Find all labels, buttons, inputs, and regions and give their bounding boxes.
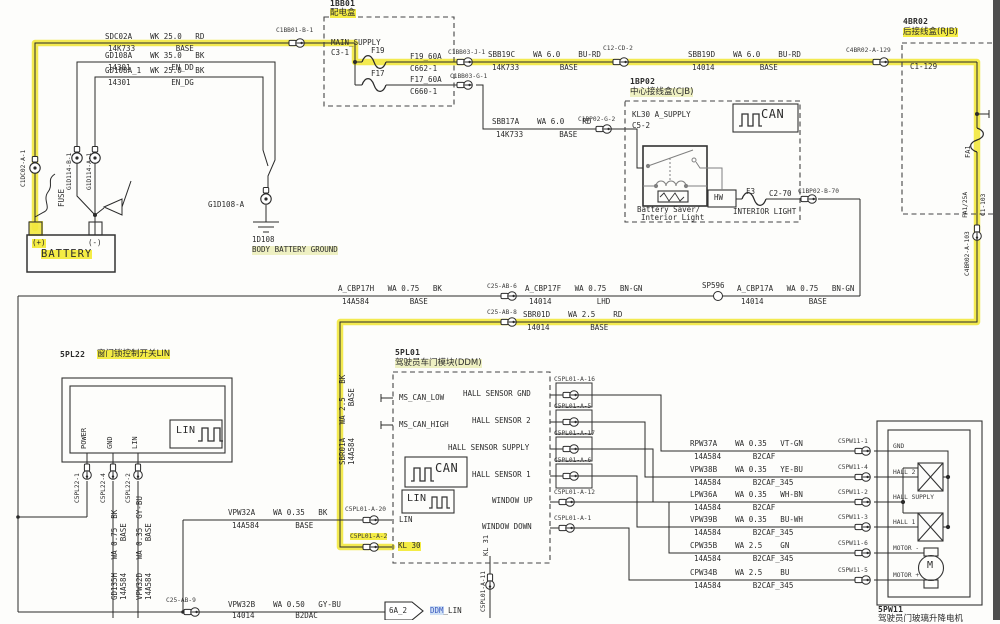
- conn-c5pl01-a-6-icon: [563, 472, 578, 481]
- lin-waveform-icon-ddm: [429, 497, 450, 508]
- wire-sbb19d-l2: 14014 BASE: [692, 64, 778, 73]
- spl22-switch: [62, 378, 232, 462]
- pw11-pin-hall2: HALL 2: [893, 469, 915, 476]
- connector-label-c5pl01-a-20: C5PL01-A-20: [345, 506, 386, 513]
- pw11-pin-hall-supply: HALL SUPPLY: [893, 494, 934, 501]
- wire-vpw38b-l1: VPW38B WA 0.35 YE-BU: [690, 466, 803, 475]
- fuse-fa1-label: FA1: [965, 145, 972, 158]
- hw-label: HW: [714, 194, 723, 203]
- fuse-f17-spec: F17_60A: [410, 76, 442, 85]
- ddm-pin-hall-1: HALL SENSOR 1: [472, 471, 531, 480]
- cjb-name: 中心接线盒(CJB): [630, 88, 693, 97]
- fuse-fa1-spec: FA1/25A: [962, 192, 969, 218]
- conn-c5pl01-a-5-icon: [563, 418, 578, 427]
- conn-c4br02-a-129-icon: [873, 58, 888, 67]
- offpage-ref-label: DDM_LIN: [430, 607, 462, 616]
- ddm-pin-window-down: WINDOW DOWN: [482, 523, 532, 532]
- wire-vpw39b-l1: VPW39B WA 0.35 BU-WH: [690, 516, 803, 525]
- connector-label-c5pw11-5: C5PW11-5: [838, 567, 868, 574]
- battery-positive-label: (+): [32, 239, 46, 248]
- wire-vpw32a-l1: VPW32A WA 0.35 BK: [228, 509, 327, 518]
- can-waveform-icon: [739, 114, 762, 126]
- pw11-pin-hall1: HALL 1: [893, 519, 915, 526]
- conn-c25-ab-9-icon: [184, 608, 199, 617]
- lin-waveform-icon: [198, 428, 223, 441]
- cjb-id: 1BP02: [630, 78, 655, 87]
- connector-label-c25-ab-9: C25-AB-9: [166, 597, 196, 604]
- connector-label-c5pl01-a-11: C5PL01-A-11: [480, 571, 487, 612]
- ddm-pin-hall-2: HALL SENSOR 2: [472, 417, 531, 426]
- conn-c5pw11-1-icon: [855, 447, 870, 456]
- ground-name-label: BODY BATTERY GROUND: [252, 246, 338, 255]
- conn-c1bb03-j-1-icon: [457, 58, 472, 67]
- conn-c5pl01-a-20-icon: [363, 516, 378, 525]
- relay-box: [643, 146, 707, 206]
- ddm-pin-hall-supply: HALL SENSOR SUPPLY: [448, 444, 529, 453]
- pw11-pin-motor-neg: MOTOR -: [893, 545, 919, 552]
- fuse-label: FUSE: [58, 189, 65, 207]
- cjb-pin-c5-2: C5-2: [632, 122, 650, 131]
- relay-internals: [643, 150, 722, 190]
- ddm-pin-ms-can-high: MS_CAN_HIGH: [399, 421, 449, 430]
- connector-label-c4br02-a-129: C4BR02-A-129: [846, 47, 891, 54]
- wire-sbb19d-l1: SBB19D WA 6.0 BU-RD: [688, 51, 801, 60]
- wire-acbp17h-l2: 14A584 BASE: [342, 298, 428, 307]
- window-edge-strip: [993, 0, 1000, 620]
- connector-label-c1dc02-a-1: C1DC02-A-1: [20, 150, 27, 187]
- spl22-pin-lin: LIN: [132, 436, 139, 449]
- can-waveform-icon-ddm: [411, 468, 434, 481]
- connector-label-c25-ab-6: C25-AB-6: [487, 283, 517, 290]
- connector-label-c5pw11-3: C5PW11-3: [838, 514, 868, 521]
- ddm-pin-kl30: KL 30: [398, 542, 421, 551]
- resistor-box: [658, 191, 688, 202]
- ring-c1dc02-a-1-icon: [30, 157, 40, 174]
- battery-positive-highlight: [29, 221, 43, 236]
- conn-c1bp02-b-70-icon: [801, 195, 816, 204]
- ddm-id: 5PL01: [395, 349, 420, 358]
- ddm-lin-symbol-text: LIN: [407, 495, 427, 504]
- wire-sbb19c-l2: 14K733 BASE: [492, 64, 578, 73]
- wire-gd108a-l1: GD108A WK 35.0 BK: [105, 52, 204, 61]
- ddm-pin-lin: LIN: [399, 516, 413, 525]
- fuse-f17-label: F17: [371, 70, 385, 79]
- wire-sbb19c-l1: SBB19C WA 6.0 BU-RD: [488, 51, 601, 60]
- wire-lpw36a-l2: 14A584 B2CAF: [694, 504, 775, 513]
- conn-c5pl01-a-1-icon: [559, 524, 574, 533]
- fuse-f17-icon: [362, 79, 386, 92]
- offpage-arrow-label: 6A_2: [389, 607, 407, 616]
- ddm-name: 驾驶员车门模块(DDM): [395, 359, 482, 368]
- splice-label-sp596: SP596: [702, 282, 725, 291]
- connector-label-c25-ab-8: C25-AB-8: [487, 309, 517, 316]
- spl22-pin-power: POWER: [81, 428, 88, 449]
- conn-c25-ab-8-icon: [501, 318, 516, 327]
- bb01-name: 配电盒: [330, 9, 356, 18]
- wire-sbr01a-label: SBR01A WA 2.5 BK14A584 BASE: [322, 375, 365, 465]
- ddm-link-text: DDM: [430, 606, 444, 615]
- connector-label-c12-cd-2: C12-CD-2: [603, 45, 633, 52]
- conn-c5pl22-1-icon: [83, 464, 92, 479]
- battery-label: BATTERY: [41, 250, 92, 259]
- wire-vpw32b-l2: 14014 B2DAC: [232, 612, 318, 621]
- conn-c5pw11-4-icon: [855, 473, 870, 482]
- connector-label-c5pl01-a-1: C5PL01-A-1: [554, 515, 591, 522]
- connector-label-c5pl01-a-17: C5PL01-A-17: [554, 430, 595, 437]
- wire-rpw37a-l1: RPW37A WA 0.35 VT-GN: [690, 440, 803, 449]
- wire-acbp17h-l1: A_CBP17H WA 0.75 BK: [338, 285, 442, 294]
- bb01-pin-c3-1: C3-1: [331, 49, 349, 58]
- connector-label-c1bb03-j-1: C1BB03-J-1: [448, 49, 485, 56]
- connector-label-c5pl01-a-16: C5PL01-A-16: [554, 376, 595, 383]
- connector-label-c1bp02-b-70: C1BP02-B-70: [798, 188, 839, 195]
- connector-label-g1d114-b-1: G1D114-B-1: [66, 153, 73, 190]
- connector-label-c5pw11-2: C5PW11-2: [838, 489, 868, 496]
- relay-name-l2: Interior Light: [641, 214, 704, 223]
- spl22-pin-gnd: GND: [107, 436, 114, 449]
- wire-vpw38b-l2: 14A584 B2CAF_345: [694, 479, 793, 488]
- rjb-id: 4BR02: [903, 18, 928, 27]
- ring-g1d108-a-icon: [261, 188, 271, 205]
- fuse-f17-conn: C660-1: [410, 88, 437, 97]
- connector-label-c5pl01-a-5: C5PL01-A-5: [554, 403, 591, 410]
- wire-sbb17a-l1: SBB17A WA 6.0 RD: [492, 118, 591, 127]
- connector-label-c5pl22-4: C5PL22-4: [100, 473, 107, 503]
- ddm-pin-window-up: WINDOW UP: [492, 497, 533, 506]
- conn-c5pl01-a-12-icon: [559, 498, 574, 507]
- pw11-pin-motor-pos: MOTOR +: [893, 572, 919, 579]
- conn-c5pw11-2-icon: [855, 498, 870, 507]
- connector-label-c5pl01-a-6: C5PL01-A-6: [554, 457, 591, 464]
- connector-label-g1d114-a-1: G1D114-A-1: [86, 153, 93, 190]
- conn-c5pw11-6-icon: [855, 549, 870, 558]
- rjb-pin-c1-129: C1-129: [910, 63, 937, 72]
- ground-ring-label: G1D108-A: [208, 201, 244, 210]
- fuse-f19-spec: F19_60A: [410, 53, 442, 62]
- wire-gd108a1-l1: GD108A_1 WK 25.0 BK: [105, 67, 204, 76]
- conn-c5pw11-3-icon: [855, 523, 870, 532]
- wire-vpw32d-label: VPW32D WA 0.35 GY-BU14A584 BASE: [119, 496, 162, 600]
- fuse-f19-conn: C662-1: [410, 65, 437, 74]
- conn-c5pw11-5-icon: [855, 576, 870, 585]
- wire-vpw39b-l2: 14A584 B2CAF_345: [694, 529, 793, 538]
- wire-sbr01d-l1: SBR01D WA 2.5 RD: [523, 311, 622, 320]
- conn-c5pl22-2-icon: [134, 464, 143, 479]
- wire-gd108a1-l2: 14301 EN_DG: [108, 79, 194, 88]
- connector-label-c4br02-a-103: C4BR02-A-103: [964, 231, 971, 276]
- connector-label-c5pl01-a-12: C5PL01-A-12: [554, 489, 595, 496]
- wire-rpw37a-l2: 14A584 B2CAF: [694, 453, 775, 462]
- connector-label-c5pw11-6: C5PW11-6: [838, 540, 868, 547]
- conn-c1bb03-g-1-icon: [457, 81, 472, 90]
- conn-c1bp02-g-2-icon: [596, 125, 611, 134]
- wire-acbp17a-l2: 14014 BASE: [741, 298, 827, 307]
- cjb-kl30-supply: KL30 A_SUPPLY: [632, 111, 691, 120]
- wire-acbp17f-l2: 14014 LHD: [529, 298, 610, 307]
- wire-acbp17f-l1: A_CBP17F WA 0.75 BN-GN: [525, 285, 642, 294]
- ring-g1d114-b-1-icon: [72, 147, 82, 164]
- wire-sbr01d-l2: 14014 BASE: [527, 324, 608, 333]
- can-symbol-text: CAN: [761, 110, 784, 119]
- conn-c4br02-a-103-icon: [973, 225, 982, 240]
- conn-c5pl01-a-16-icon: [563, 391, 578, 400]
- rjb-pin-c1-103: C1-103: [980, 194, 987, 216]
- connector-label-c1bb03-g-1: C1BB03-G-1: [450, 73, 487, 80]
- splice-sp596-icon: [714, 292, 723, 301]
- wire-acbp17a-l1: A_CBP17A WA 0.75 BN-GN: [737, 285, 854, 294]
- ddm-can-symbol-text: CAN: [435, 464, 458, 473]
- wire-lpw36a-l1: LPW36A WA 0.35 WH-BN: [690, 491, 803, 500]
- conn-c25-ab-6-icon: [501, 292, 516, 301]
- rjb-name: 后接线盒(RJB): [903, 28, 958, 37]
- conn-c5pl01-a-2-icon: [363, 543, 378, 552]
- ground-id-label: 1D108: [252, 236, 275, 245]
- motor-m-label: M: [927, 562, 934, 571]
- pw11-pin-gnd: GND: [893, 443, 904, 450]
- wire-cpw34b-l2: 14A584 B2CAF_345: [694, 582, 793, 591]
- connector-label-c5pw11-4: C5PW11-4: [838, 464, 868, 471]
- conn-c1bb01-b-1-icon: [289, 39, 304, 48]
- connector-label-c5pl01-a-2: C5PL01-A-2: [350, 533, 387, 540]
- wire-sbb17a-l2: 14K733 BASE: [496, 131, 577, 140]
- cjb-pin-c2-70: C2-70: [769, 190, 792, 199]
- fuse-f19-label: F19: [371, 47, 385, 56]
- interior-light-label: INTERIOR LIGHT: [733, 208, 796, 217]
- ddm-pin-kl31: KL 31: [483, 535, 490, 556]
- fuse-f3-label: F3: [746, 188, 755, 197]
- wire-cpw35b-l2: 14A584 B2CAF_345: [694, 555, 793, 564]
- wire-vpw32a-l2: 14A584 BASE: [232, 522, 313, 531]
- conn-c12-cd-2-icon: [613, 58, 628, 67]
- battery-negative-label: (-): [88, 239, 102, 248]
- connector-label-c1bb01-b-1: C1BB01-B-1: [276, 27, 313, 34]
- spl22-id: 5PL22: [60, 351, 85, 360]
- connector-label-c1bp02-g-2: C1BP02-G-2: [578, 116, 615, 123]
- connector-label-c5pl22-1: C5PL22-1: [74, 473, 81, 503]
- wire-cpw34b-l1: CPW34B WA 2.5 BU: [690, 569, 789, 578]
- wire-vpw32b-l1: VPW32B WA 0.50 GY-BU: [228, 601, 341, 610]
- wire-sdc02a-l1: SDC02A WK 25.0 RD: [105, 33, 204, 42]
- wire-cpw35b-l1: CPW35B WA 2.5 GN: [690, 542, 789, 551]
- ddm-pin-ms-can-low: MS_CAN_LOW: [399, 394, 444, 403]
- ddm-pin-hall-gnd: HALL SENSOR GND: [463, 390, 531, 399]
- conn-c5pl22-4-icon: [109, 464, 118, 479]
- spl22-name: 窗门锁控制开关LIN: [97, 350, 170, 359]
- spl22-lin-symbol-text: LIN: [176, 427, 196, 436]
- connector-label-c5pw11-1: C5PW11-1: [838, 438, 868, 445]
- wiring-diagram: SDC02A WK 25.0 RD 14K733 BASE GD108A WK …: [0, 0, 1000, 620]
- conn-c5pl01-a-17-icon: [563, 445, 578, 454]
